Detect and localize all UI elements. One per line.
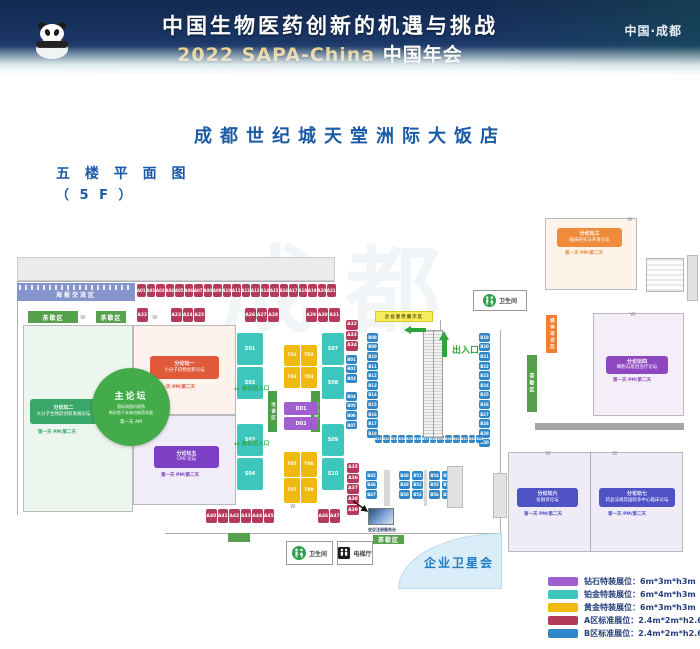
legend-label: B区标准展位： (584, 629, 638, 638)
elevator-box: 电梯厅 (337, 541, 373, 565)
hall-entrance-label: ↔ 会议区入口 (234, 384, 269, 393)
booth-A44: A44 (252, 509, 263, 523)
forum6-caption: 第一天 PM/第二天 (524, 511, 562, 517)
main-forum-line2: 新形势下未来创新药发展 (109, 410, 153, 416)
booth-A21: A21 (327, 284, 336, 297)
booth-col-b-south: B48B49B50 (399, 471, 410, 499)
booth-B53: B53 (412, 490, 423, 499)
booth-group-a: A23A24A25 (171, 308, 205, 322)
floor-sub-label: （ 5 F ） (56, 184, 135, 203)
booth-S08: S08 (322, 367, 344, 399)
double-arrow-icon: ↔ (234, 385, 240, 393)
booth-A34: A34 (346, 341, 358, 351)
tea-break-strip: 茶歇区 (527, 355, 537, 412)
door-mark: w (80, 314, 86, 321)
booth-B56: B56 (429, 490, 440, 499)
booth-B31: B31 (375, 435, 382, 443)
booth-B16: B16 (367, 410, 378, 419)
booth-B23: B23 (479, 371, 490, 380)
wall-room-divider (590, 452, 591, 552)
booth-B03: B03 (346, 374, 357, 383)
booth-B32: B32 (383, 435, 390, 443)
booth-B22: B22 (479, 362, 490, 371)
booth-A40: A40 (206, 509, 217, 523)
booth-D02: D02 (284, 417, 318, 430)
booth-row-a-top: A01A02A03A04A05A06A07A08A09A10A11A12A13A… (137, 284, 336, 297)
booth-B54: B54 (429, 471, 440, 480)
booth-T01: T01 (284, 345, 300, 366)
up-arrow-icon (439, 331, 450, 358)
booth-B02: B02 (346, 365, 357, 374)
booth-B35: B35 (406, 435, 413, 443)
booth-B11: B11 (367, 362, 378, 371)
registration-caption: 会议注册服务台 (352, 527, 412, 533)
booth-B01: B01 (346, 355, 357, 364)
restroom-label: 卫生间 (309, 549, 327, 558)
tea-break-bar (228, 533, 250, 542)
legend-swatch-platinum (548, 590, 578, 599)
booth-B12: B12 (367, 371, 378, 380)
tea-break-bar: 茶歇区 (373, 535, 404, 544)
forum4-name: 细胞与基因治疗论坛 (606, 365, 668, 371)
stairs (646, 258, 684, 292)
hall-entrance-label: ↔ 会议区入口 (234, 439, 269, 448)
forum2-caption: 第一天 PM/第二天 (38, 429, 76, 435)
booth-col-s-right-top: S07S08 (322, 333, 344, 399)
forum5-name: CMC论坛 (154, 457, 219, 463)
booth-S07: S07 (322, 333, 344, 365)
booth-B42: B42 (461, 435, 468, 443)
door-mark: w (545, 450, 551, 457)
booth-A23: A23 (171, 308, 182, 322)
legend-size: 6m*3m*h3m (640, 577, 696, 586)
booth-B24: B24 (479, 381, 490, 390)
double-arrow-icon: ↔ (234, 440, 240, 448)
legend-row: A区标准展位：2.4m*2m*h2.6m (548, 615, 700, 626)
booth-col-b-esc-left: B08B09B10B11B12B13B14B15B16B17B18 (367, 333, 378, 438)
booth-A03: A03 (156, 284, 165, 297)
booth-A14: A14 (261, 284, 270, 297)
legend-label: A区标准展位： (584, 616, 638, 625)
booth-A25: A25 (194, 308, 205, 322)
door-mark: w (630, 311, 636, 318)
booth-S10: S10 (322, 458, 344, 490)
left-arrow-icon (404, 325, 428, 335)
booth-A35: A35 (347, 463, 359, 473)
booth-T06: T06 (301, 452, 317, 477)
booth-group-a: A29A30A31 (306, 308, 340, 322)
forum7-caption: 第一天 PM/第二天 (608, 511, 646, 517)
door-mark: w (627, 216, 633, 223)
booth-B20: B20 (479, 343, 490, 352)
booth-A15: A15 (270, 284, 279, 297)
floor-plan-page: 中国生物医药创新的机遇与挑战 2022 SAPA-China 中国年会 中国·成… (0, 0, 700, 649)
event-banner: 中国生物医药创新的机遇与挑战 2022 SAPA-China 中国年会 中国·成… (0, 0, 700, 76)
booth-B49: B49 (399, 481, 410, 490)
restroom-box-bottom: 卫生间 (286, 541, 333, 565)
booth-A10: A10 (223, 284, 232, 297)
booth-B48: B48 (399, 471, 410, 480)
corridor (17, 257, 335, 281)
shaft (687, 255, 698, 301)
main-forum-circle: 主论坛 国际和国内视角 新形势下未来创新药发展 第一天 AM (92, 368, 170, 446)
booth-A05: A05 (175, 284, 184, 297)
door-mark: w (612, 450, 618, 457)
forum7-tag: 分论坛七 (599, 491, 675, 498)
booth-grid-t-top: T01T02T03T04 (284, 345, 317, 388)
legend-label: 黄金特装展位： (584, 603, 640, 612)
legend-row: 铂金特装展位：6m*4m*h3m (548, 589, 696, 600)
booth-A36: A36 (347, 474, 359, 484)
promo-display-bar: 企业宣传展示区 (375, 311, 433, 322)
wall-thick (535, 423, 684, 430)
booth-A22: A22 (137, 308, 148, 322)
booth-A08: A08 (204, 284, 213, 297)
booth-B26: B26 (479, 400, 490, 409)
booth-B52: B52 (412, 481, 423, 490)
door-mark: w (152, 314, 158, 321)
wall-left (17, 281, 18, 515)
booth-T04: T04 (301, 367, 317, 388)
booth-A30: A30 (318, 308, 329, 322)
legend-swatch-gold (548, 603, 578, 612)
elevator-icon (338, 547, 350, 559)
booth-B50: B50 (399, 490, 410, 499)
booth-B09: B09 (367, 343, 378, 352)
booth-A42: A42 (229, 509, 240, 523)
pillar (493, 473, 507, 518)
event-location: 中国·成都 (624, 22, 682, 39)
legend-label: 铂金特装展位： (584, 590, 640, 599)
legend-swatch-b-zone (548, 629, 578, 638)
booth-col-d: D01D02 (284, 402, 318, 430)
booth-group-a: A26A27A28 (245, 308, 279, 322)
booth-A26: A26 (245, 308, 256, 322)
booth-S09: S09 (322, 424, 344, 456)
legend-size: 6m*3m*h3m (640, 603, 696, 612)
booth-B04: B04 (346, 392, 357, 401)
forum7-name: 药品法规及国际多中心临床论坛 (599, 498, 675, 504)
booth-A29: A29 (306, 308, 317, 322)
booth-B10: B10 (367, 352, 378, 361)
forum1-box: 分论坛一 小分子药物创新论坛 (150, 356, 219, 379)
booth-grid-t-bottom: T05T06T07T08 (284, 452, 317, 503)
legend-swatch-diamond (548, 577, 578, 586)
restroom-box-top: 卫生间 (473, 290, 527, 311)
booth-col-b1: B01B02B03 (346, 355, 357, 383)
legend-row: 黄金特装展位：6m*3m*h3m (548, 602, 696, 613)
booth-B33: B33 (391, 435, 398, 443)
forum5-box: 分论坛五 CMC论坛 (154, 446, 219, 468)
main-forum-time: 第一天 AM (120, 419, 142, 425)
booth-D01: D01 (284, 402, 318, 415)
booth-col-b-south: B45B46B47 (366, 471, 377, 499)
booth-B15: B15 (367, 400, 378, 409)
booth-B46: B46 (366, 481, 377, 490)
forum3-tag: 分论坛三 (557, 231, 622, 238)
booth-B51: B51 (412, 471, 423, 480)
booth-B07: B07 (346, 421, 357, 430)
booth-A45: A45 (264, 509, 275, 523)
booth-B27: B27 (479, 410, 490, 419)
legend-swatch-a-zone (548, 616, 578, 625)
booth-A12: A12 (242, 284, 251, 297)
exit-label: 出入口 (452, 343, 479, 356)
booth-B45: B45 (366, 471, 377, 480)
booth-B28: B28 (479, 419, 490, 428)
restroom-icon (483, 294, 496, 307)
forum6-tag: 分论坛六 (517, 491, 578, 498)
booth-B43: B43 (469, 435, 476, 443)
booth-col-s-right-bottom: S09S10 (322, 424, 344, 490)
booth-A47: A47 (330, 509, 341, 523)
booth-A28: A28 (268, 308, 279, 322)
legend-size: 2.4m*2m*h2.6m (638, 616, 700, 625)
legend-row: 钻石特装展位：6m*3m*h3m (548, 576, 696, 587)
booth-A37: A37 (347, 484, 359, 494)
registration-desk-photo (368, 508, 394, 525)
booth-T07: T07 (284, 478, 300, 503)
booth-divider (424, 470, 427, 506)
legend-size: 2.4m*2m*h2.6m (638, 629, 700, 638)
booth-A20: A20 (318, 284, 327, 297)
forum4-box: 分论坛四 细胞与基因治疗论坛 (606, 356, 668, 374)
booth-B13: B13 (367, 381, 378, 390)
booth-B40: B40 (445, 435, 452, 443)
restroom-label: 卫生间 (499, 296, 517, 305)
booth-A11: A11 (232, 284, 241, 297)
booth-A33: A33 (346, 331, 358, 341)
booth-A19: A19 (308, 284, 317, 297)
booth-B06: B06 (346, 411, 357, 420)
banner-mist (0, 46, 700, 76)
booth-B17: B17 (367, 419, 378, 428)
booth-A18: A18 (299, 284, 308, 297)
booth-A24: A24 (183, 308, 194, 322)
booth-S01: S01 (237, 333, 263, 365)
booth-col-s-left-bottom: S03S04 (237, 424, 263, 490)
forum3-box: 分论坛三 临床研究与开发论坛 (557, 228, 622, 247)
booth-A27: A27 (257, 308, 268, 322)
tea-break-bar: 茶歇区 (28, 311, 78, 323)
legend-size: 6m*4m*h3m (640, 590, 696, 599)
forum2-box: 分论坛二 大分子生物药创新发展论坛 (30, 399, 97, 424)
booth-B44: B44 (476, 435, 483, 443)
booth-A46: A46 (318, 509, 329, 523)
forum5-caption: 第一天 PM/第二天 (161, 472, 199, 478)
booth-col-b-esc-right: B19B20B21B22B23B24B25B26B27B28B29B30 (479, 333, 490, 447)
forum1-tag: 分论坛一 (150, 361, 219, 368)
booth-B08: B08 (367, 333, 378, 342)
booth-A09: A09 (213, 284, 222, 297)
booth-A13: A13 (251, 284, 260, 297)
booth-col-b-south: B51B52B53 (412, 471, 423, 499)
booth-a22: A22 (137, 308, 148, 322)
booth-T03: T03 (284, 367, 300, 388)
booth-T08: T08 (301, 478, 317, 503)
booth-divider (384, 470, 390, 506)
forum4-caption: 第一天 PM/第二天 (613, 377, 651, 383)
satellite-meeting-label: 企业卫星会 (424, 554, 494, 571)
forum2-name: 大分子生物药创新发展论坛 (30, 412, 97, 418)
booth-A01: A01 (137, 284, 146, 297)
legend-label: 钻石特装展位： (584, 577, 640, 586)
booth-B21: B21 (479, 352, 490, 361)
forum6-box: 分论坛六 投融资论坛 (517, 488, 578, 507)
legend-row: B区标准展位：2.4m*2m*h2.6m (548, 628, 700, 639)
booth-S02: S02 (237, 367, 263, 399)
forum2-tag: 分论坛二 (30, 405, 97, 412)
booth-B25: B25 (479, 391, 490, 400)
wall-bottom (165, 533, 500, 534)
hotel-title: 成都世纪城天堂洲际大饭店 (0, 122, 700, 148)
booth-B36: B36 (414, 435, 421, 443)
booth-A41: A41 (218, 509, 229, 523)
wall-top (17, 281, 335, 282)
lounge-strip: 洽谈区 (268, 391, 277, 432)
forum3-caption: 第一天 PM/第二天 (565, 250, 603, 256)
booth-row-a-bottom: A46A47 (318, 509, 340, 523)
booth-A32: A32 (346, 320, 358, 330)
event-title: 中国生物医药创新的机遇与挑战 (0, 10, 660, 40)
booth-T05: T05 (284, 452, 300, 477)
booth-A31: A31 (329, 308, 340, 322)
forum6-name: 投融资论坛 (517, 498, 578, 504)
booth-col-a-top: A32A33A34 (346, 320, 358, 351)
poster-area: 海报交流区 (17, 283, 135, 301)
booth-A06: A06 (185, 284, 194, 297)
booth-B55: B55 (429, 481, 440, 490)
elevator-label: 电梯厅 (353, 549, 371, 558)
booth-B19: B19 (479, 333, 490, 342)
tea-break-bar: 茶歇区 (96, 311, 126, 323)
forum1-name: 小分子药物创新论坛 (150, 368, 219, 374)
media-strip: 媒体采访区 (546, 315, 557, 353)
booth-B14: B14 (367, 391, 378, 400)
booth-S04: S04 (237, 458, 263, 490)
door-mark: w (290, 503, 296, 510)
booth-col-b1: B04B05B06B07 (346, 392, 357, 429)
booth-row-a-bottom: A40A41A42A43A44A45 (206, 509, 274, 523)
booth-B34: B34 (398, 435, 405, 443)
booth-B41: B41 (453, 435, 460, 443)
booth-T02: T02 (301, 345, 317, 366)
booth-A02: A02 (147, 284, 156, 297)
booth-A43: A43 (241, 509, 252, 523)
restroom-icon (292, 546, 306, 560)
floor-label: 五 楼 平 面 图 (56, 163, 191, 183)
booth-A17: A17 (289, 284, 298, 297)
booth-A04: A04 (166, 284, 175, 297)
forum7-box: 分论坛七 药品法规及国际多中心临床论坛 (599, 488, 675, 507)
main-forum-title: 主论坛 (114, 389, 147, 402)
booth-B05: B05 (346, 402, 357, 411)
service-block (447, 466, 463, 508)
booth-A16: A16 (280, 284, 289, 297)
forum3-name: 临床研究与开发论坛 (557, 238, 622, 244)
booth-col-b-south: B54B55B56 (429, 471, 440, 499)
booth-A07: A07 (194, 284, 203, 297)
